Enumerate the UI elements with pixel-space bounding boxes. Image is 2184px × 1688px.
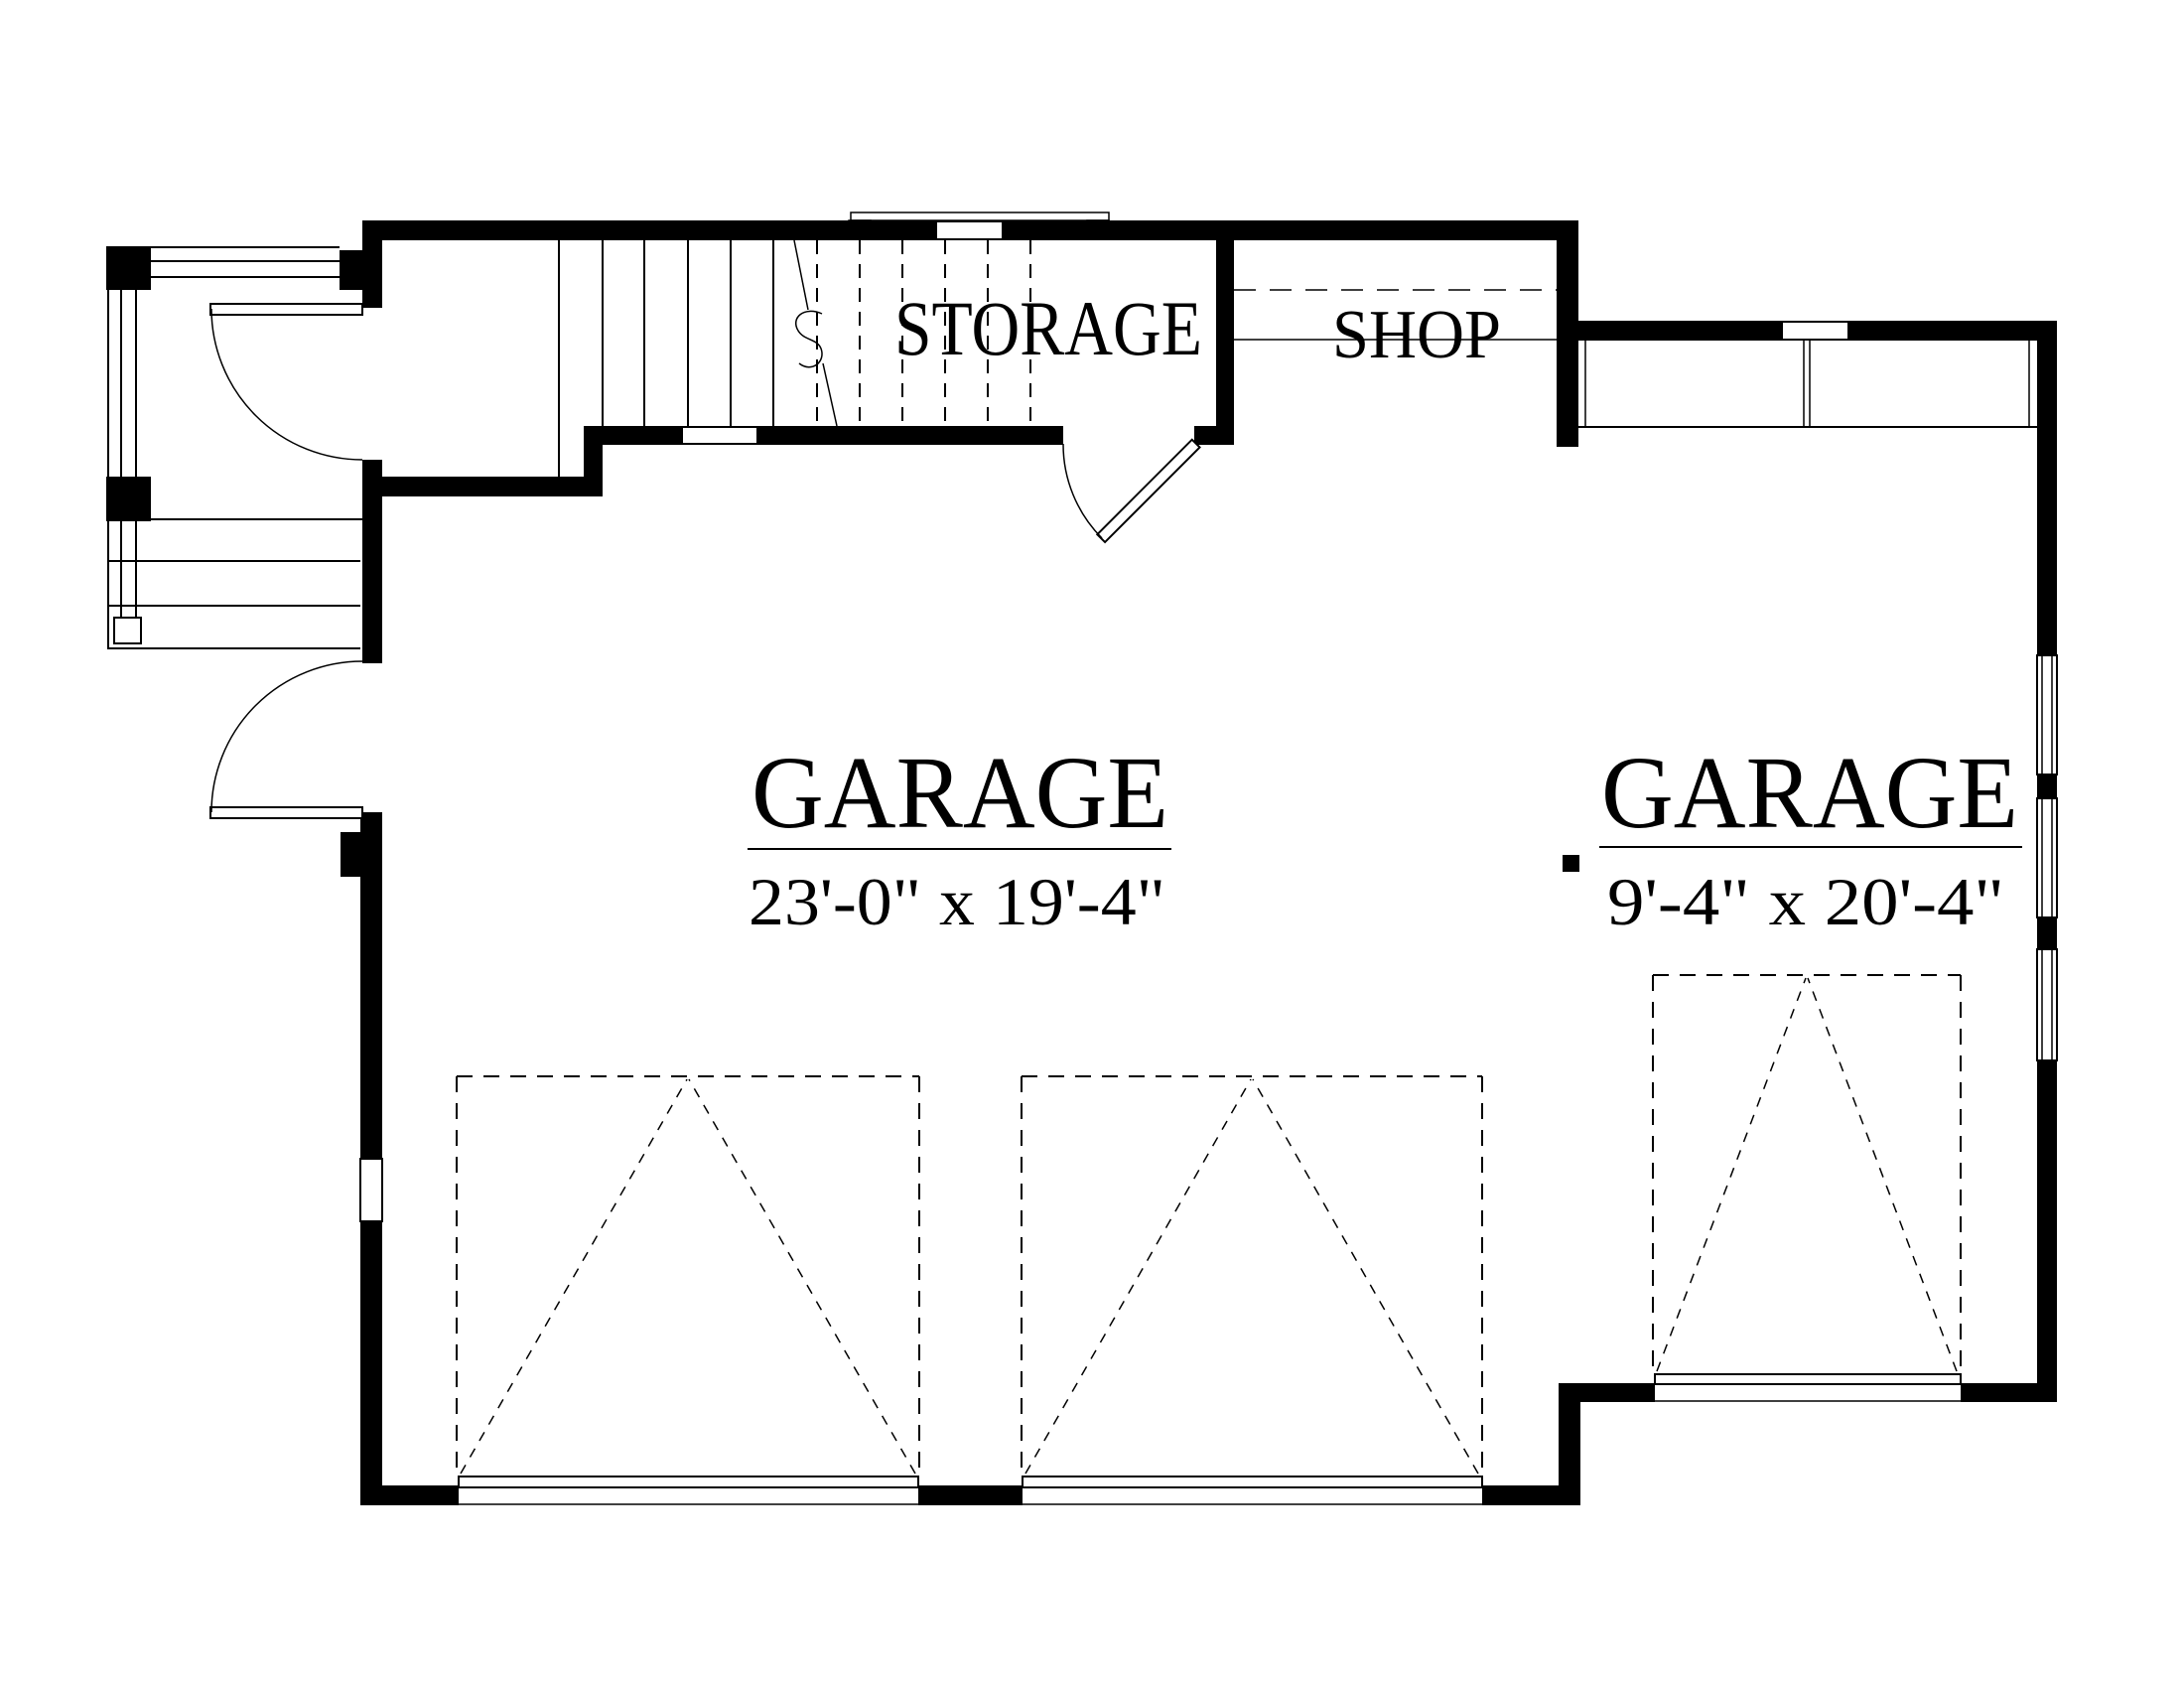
ledge-rail [851, 212, 1109, 220]
wall-storage-right-tip [1194, 426, 1234, 445]
wall-bottom-mid-pier [918, 1485, 1023, 1505]
wall-bottom-left-corner [360, 1485, 459, 1505]
garage-door-1-sill [459, 1477, 918, 1487]
garage-door-3 [1653, 975, 1961, 1401]
garage-bay-dimensions: 9'-4" x 20'-4" [1607, 864, 2004, 939]
stair-break-s-symbol [796, 311, 822, 366]
wall-shop-right [1557, 236, 1578, 447]
garage-bay-label: GARAGE [1601, 736, 2018, 850]
garage-door-1-swing-left [461, 1079, 687, 1474]
wall-step-vertical [1559, 1383, 1580, 1505]
floor-plan-page: STORAGE SHOP GARAGE 23'-0" x 19'-4" GARA… [0, 0, 2184, 1688]
storage-door-swing-arc [1063, 444, 1102, 538]
structural-post [1563, 855, 1579, 872]
garage-side-door-swing-arc [211, 661, 362, 812]
porch-door-leaf [210, 304, 362, 315]
wall-left-upper-stub [362, 240, 382, 308]
garage-door-1-swing-right [689, 1079, 915, 1474]
porch-post-bottom [106, 477, 151, 521]
window-storage-bottom [682, 427, 757, 444]
porch-post-top [106, 246, 151, 290]
wall-storage-right [1216, 236, 1234, 445]
windows [360, 221, 2057, 1221]
wall-left-lower [360, 812, 382, 1485]
wall-left-pilaster [341, 832, 382, 877]
storage-door-leaf [1097, 440, 1199, 542]
porch-door-swing-arc [211, 309, 362, 460]
bay-window-band [1578, 341, 2037, 427]
floor-plan-drawing: STORAGE SHOP GARAGE 23'-0" x 19'-4" GARA… [0, 0, 2184, 1688]
garage-door-1 [457, 1076, 919, 1504]
wall-storage-bottom [584, 426, 1063, 445]
window-storage-top [936, 221, 1003, 239]
window-right-wall-2 [2037, 798, 2057, 917]
stair-break-line-lower [823, 363, 837, 426]
window-bay-top [1782, 322, 1848, 340]
garage-main-dimensions: 23'-0" x 19'-4" [749, 864, 1165, 939]
garage-door-3-swing-right [1808, 978, 1957, 1371]
garage-side-door-leaf [210, 807, 362, 818]
window-right-wall-3 [2037, 949, 2057, 1060]
garage-door-2-swing-left [1025, 1079, 1251, 1474]
garage-main-label: GARAGE [751, 736, 1168, 850]
exterior-walls [340, 220, 2057, 1505]
room-labels: STORAGE SHOP GARAGE 23'-0" x 19'-4" GARA… [748, 285, 2022, 939]
wall-stairhall-bottom [380, 477, 603, 496]
garage-door-2 [1022, 1076, 1482, 1504]
wall-porch-attach-stub [340, 250, 362, 290]
garage-door-3-sill [1655, 1374, 1961, 1384]
garage-door-2-sill [1023, 1477, 1482, 1487]
garage-door-2-swing-right [1253, 1079, 1478, 1474]
storage-label: STORAGE [894, 285, 1202, 371]
wall-left-mid-stub [362, 460, 382, 663]
porch-newel-post [114, 618, 141, 643]
window-left-wall [360, 1159, 382, 1221]
shop-label: SHOP [1332, 297, 1501, 373]
window-right-wall-1 [2037, 655, 2057, 774]
garage-door-3-swing-left [1657, 978, 1806, 1371]
wall-bay-bottom-left [1578, 1383, 1655, 1402]
stair-break-line-upper [794, 240, 808, 310]
